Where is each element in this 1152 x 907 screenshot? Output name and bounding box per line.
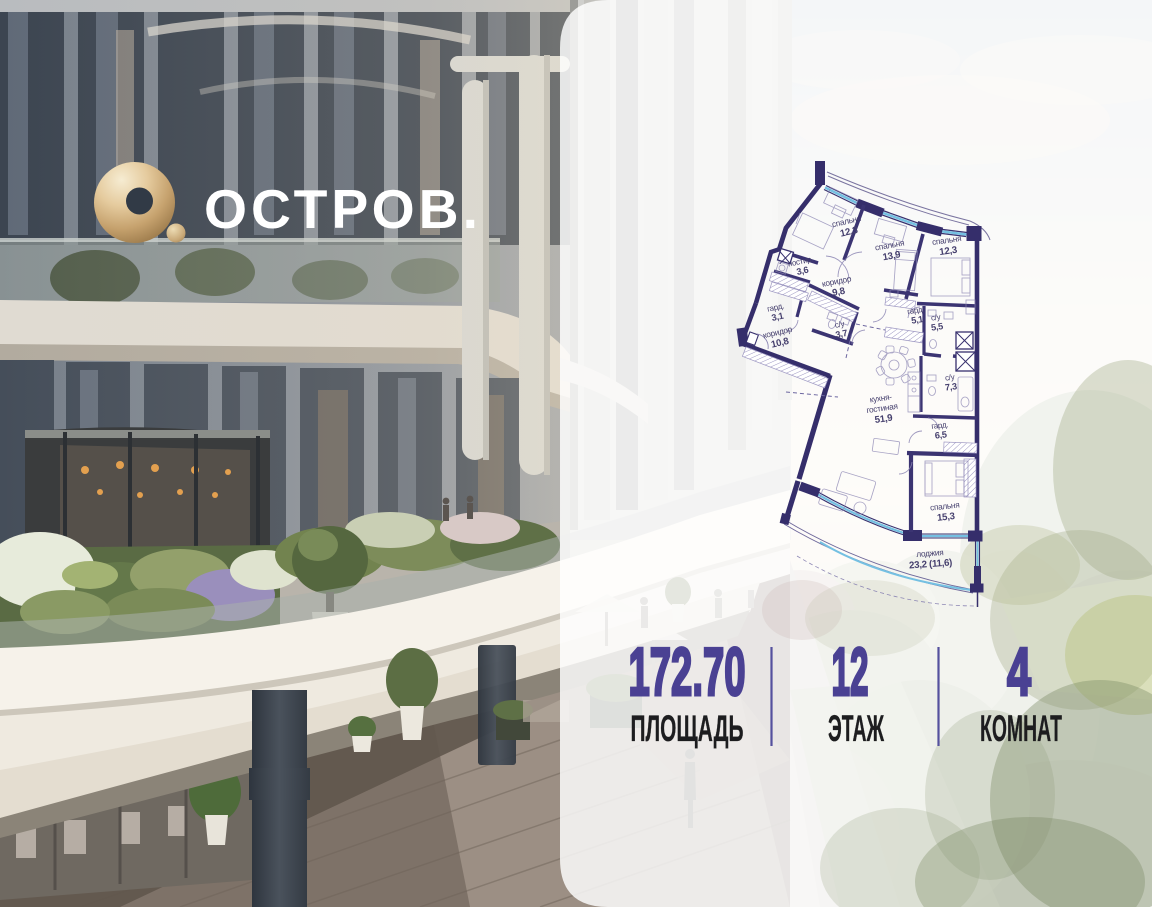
svg-text:КОМНАТ: КОМНАТ <box>980 708 1062 749</box>
svg-text:ОСТРОВ.: ОСТРОВ. <box>204 178 482 240</box>
svg-text:6,5: 6,5 <box>934 429 947 440</box>
svg-text:12: 12 <box>832 634 869 710</box>
svg-text:7,3: 7,3 <box>944 381 957 392</box>
svg-text:172.70: 172.70 <box>629 634 746 710</box>
svg-text:15,3: 15,3 <box>937 511 957 524</box>
svg-text:5,5: 5,5 <box>930 321 943 333</box>
svg-text:4: 4 <box>1007 634 1031 710</box>
svg-text:ЭТАЖ: ЭТАЖ <box>828 708 884 749</box>
svg-text:5,1: 5,1 <box>910 314 923 326</box>
svg-text:лоджия: лоджия <box>916 547 944 559</box>
svg-text:ПЛОЩАДЬ: ПЛОЩАДЬ <box>631 708 744 749</box>
